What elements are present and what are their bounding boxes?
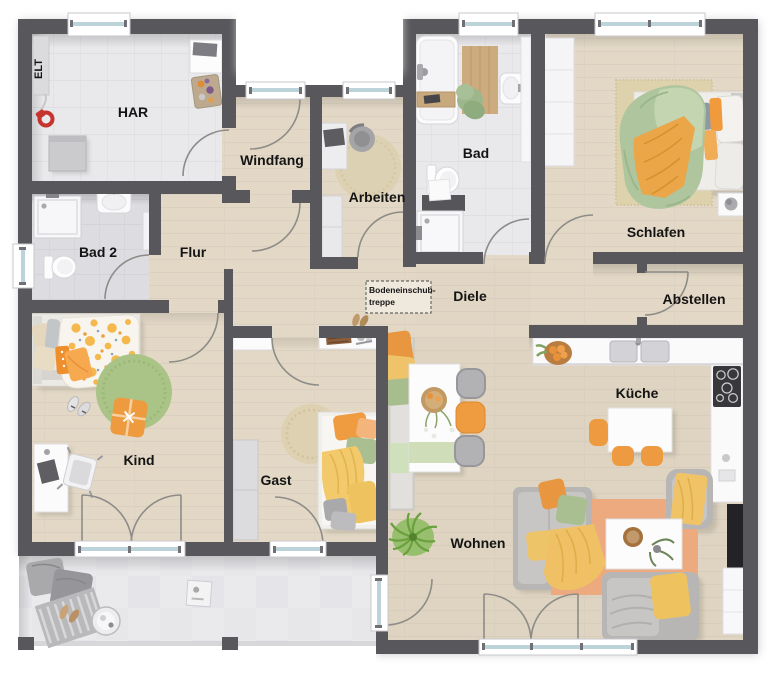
- svg-text:Flur: Flur: [180, 244, 207, 260]
- svg-text:Bad 2: Bad 2: [79, 244, 117, 260]
- svg-text:Bodeneinschub-: Bodeneinschub-: [369, 285, 436, 295]
- svg-text:Gast: Gast: [260, 472, 291, 488]
- svg-text:HAR: HAR: [118, 104, 148, 120]
- svg-text:Bad: Bad: [463, 145, 489, 161]
- svg-text:Schlafen: Schlafen: [627, 224, 685, 240]
- svg-text:Wohnen: Wohnen: [451, 535, 506, 551]
- svg-text:Diele: Diele: [453, 288, 487, 304]
- svg-text:Küche: Küche: [616, 385, 659, 401]
- svg-text:Windfang: Windfang: [240, 152, 304, 168]
- svg-text:Arbeiten: Arbeiten: [349, 189, 406, 205]
- svg-text:ELT: ELT: [33, 59, 45, 79]
- svg-text:Abstellen: Abstellen: [662, 291, 725, 307]
- svg-text:treppe: treppe: [369, 297, 395, 307]
- svg-text:Kind: Kind: [123, 452, 154, 468]
